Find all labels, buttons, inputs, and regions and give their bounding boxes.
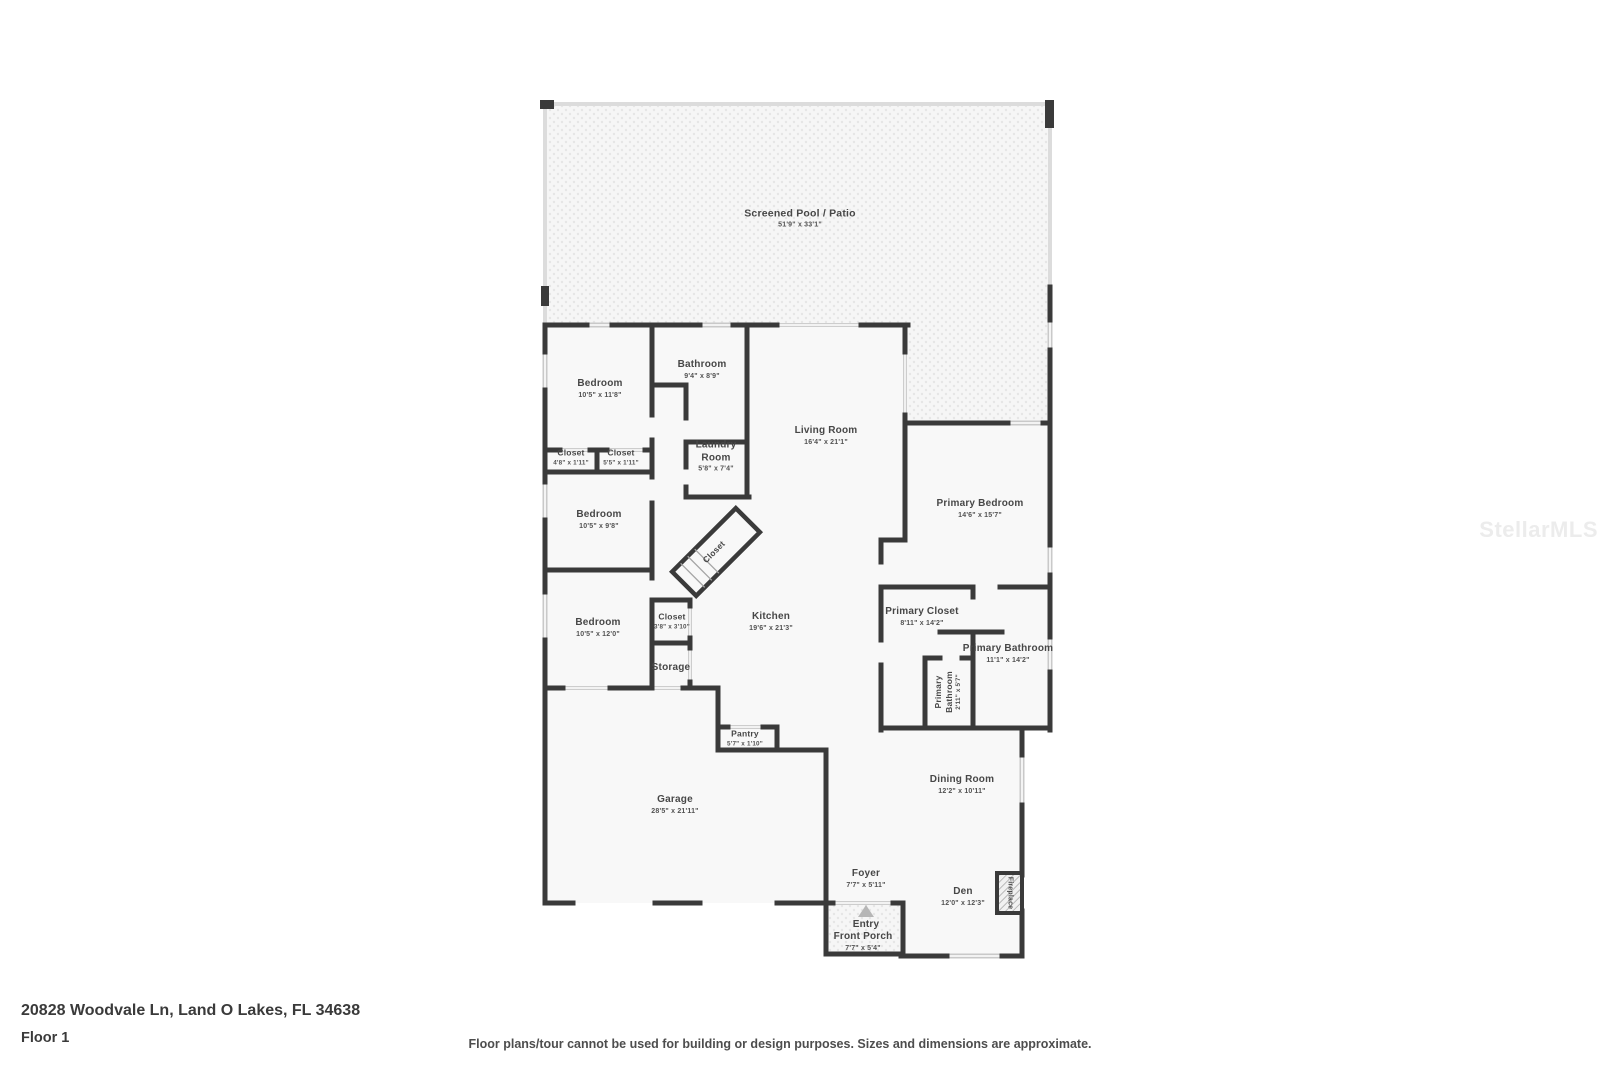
room-label-bedroom-mid: Bedroom 10'5" x 9'8": [576, 509, 621, 531]
stellar-mls-watermark: StellarMLS: [1479, 517, 1598, 543]
room-label-primary-wc: Primary Bathroom 2'11" x 5'7": [933, 666, 963, 718]
room-label-entry: Entry: [853, 919, 880, 932]
property-address: 20828 Woodvale Ln, Land O Lakes, FL 3463…: [21, 1002, 360, 1020]
room-label-dining: Dining Room 12'2" x 10'11": [930, 774, 994, 796]
room-label-primary-bedroom: Primary Bedroom 14'6" x 15'7": [937, 498, 1024, 520]
room-label-bedroom-bottom: Bedroom 10'5" x 12'0": [575, 617, 620, 639]
room-label-closet-hall: Closet 3'8" x 3'10": [647, 611, 697, 630]
room-label-pool: Screened Pool / Patio 51'9" x 33'1": [744, 208, 856, 231]
floor-label: Floor 1: [21, 1030, 69, 1046]
room-label-bathroom: Bathroom 9'4" x 8'9": [678, 359, 727, 381]
room-label-front-porch: Front Porch 7'7" x 5'4": [834, 931, 893, 953]
disclaimer-text: Floor plans/tour cannot be used for buil…: [468, 1037, 1091, 1051]
room-label-pantry: Pantry 5'7" x 1'10": [727, 728, 763, 747]
room-label-closet-left: Closet 4'8" x 1'11": [553, 447, 589, 466]
floorplan: Screened Pool / Patio 51'9" x 33'1" Bedr…: [0, 0, 1600, 1066]
room-label-living: Living Room 16'4" x 21'1": [795, 425, 858, 447]
room-label-primary-closet: Primary Closet 8'11" x 14'2": [885, 606, 958, 628]
room-label-bedroom-top: Bedroom 10'5" x 11'8": [577, 378, 622, 400]
room-label-garage: Garage 28'5" x 21'11": [651, 794, 698, 816]
floorplan-walls: [0, 0, 1600, 1066]
room-label-kitchen: Kitchen 19'6" x 21'3": [749, 611, 793, 633]
room-label-laundry: Laundry Room 5'8" x 7'4": [687, 440, 745, 475]
room-label-den: Den 12'0" x 12'3": [941, 886, 985, 908]
room-label-foyer: Foyer 7'7" x 5'11": [846, 868, 885, 890]
room-label-closet-right: Closet 5'5" x 1'11": [603, 447, 639, 466]
room-label-storage: Storage: [652, 662, 691, 675]
room-label-fireplace: Fireplace: [1005, 877, 1014, 910]
room-label-primary-bathroom: Primary Bathroom 11'1" x 14'2": [963, 643, 1053, 665]
